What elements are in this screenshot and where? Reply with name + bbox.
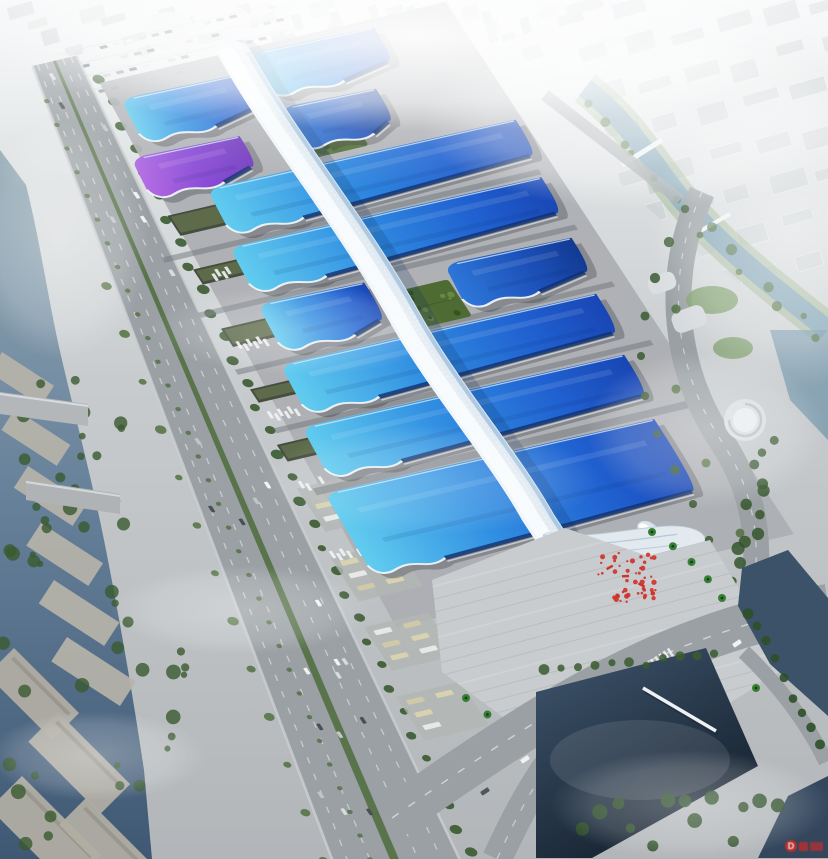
aerial-rendering: D Bird's-eye photorealistic rendering of… (0, 0, 828, 859)
watermark-glyph (810, 842, 823, 851)
fog (260, 425, 600, 535)
fog (586, 350, 826, 510)
watermark-logo: D (785, 840, 823, 852)
watermark-letter: D (785, 840, 797, 852)
fog (110, 565, 370, 655)
fog (150, 285, 450, 375)
watermark-glyph (799, 842, 808, 851)
